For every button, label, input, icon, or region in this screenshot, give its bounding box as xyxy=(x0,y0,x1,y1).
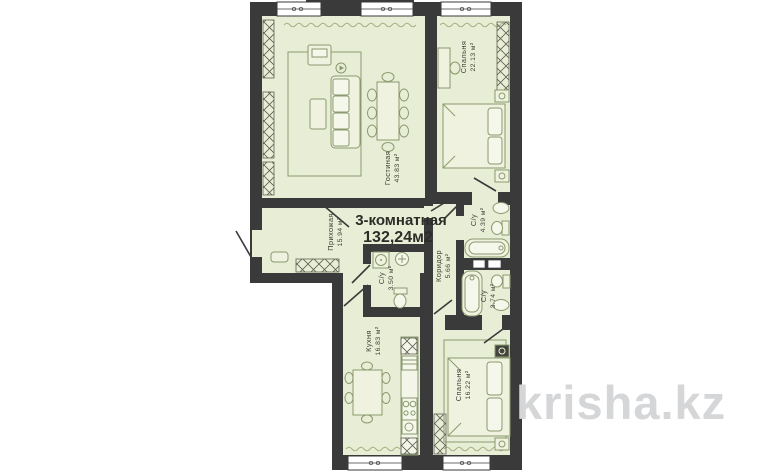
svg-text:5.66 м²: 5.66 м² xyxy=(445,253,452,278)
window-icon xyxy=(361,2,413,16)
bed-icon xyxy=(443,104,505,168)
window-icon xyxy=(348,456,402,470)
pilaster-icon xyxy=(263,20,274,78)
svg-text:Спальня: Спальня xyxy=(459,41,468,74)
bench-icon xyxy=(271,252,288,262)
bathtub-icon xyxy=(465,239,509,257)
opening-bathroom-top-door xyxy=(456,216,464,240)
sofa-icon xyxy=(331,76,360,148)
window-icon xyxy=(443,456,490,470)
window-icon xyxy=(277,2,321,16)
watermark: krisha.kz xyxy=(516,376,726,429)
pilaster-icon xyxy=(263,162,274,195)
nightstand-icon xyxy=(495,438,509,450)
wardrobe-icon xyxy=(296,259,339,272)
floor-plan-page: Гостиная 43.83 м² Спальня 22.13 м² Прихо… xyxy=(0,0,760,476)
sink-icon xyxy=(396,253,409,266)
svg-text:3.74 м²: 3.74 м² xyxy=(490,283,497,308)
svg-text:3.50 м²: 3.50 м² xyxy=(388,265,395,290)
svg-text:16.22 м²: 16.22 м² xyxy=(465,370,472,399)
washing-machine-icon xyxy=(373,252,389,268)
tv-icon xyxy=(430,51,435,63)
opening-corridor-bedroom xyxy=(433,315,445,330)
svg-text:43.83 м²: 43.83 м² xyxy=(394,153,401,182)
tv-stand-icon xyxy=(308,45,331,65)
nightstand-icon xyxy=(495,170,509,182)
svg-text:Коридор: Коридор xyxy=(434,250,443,282)
svg-text:4.39 м²: 4.39 м² xyxy=(480,207,487,232)
svg-text:Кухня: Кухня xyxy=(364,330,373,352)
plan-title-area: 132,24м2 xyxy=(363,229,433,246)
door-entrance xyxy=(236,231,251,257)
svg-text:16.83 м²: 16.83 м² xyxy=(375,326,382,355)
svg-text:Спальня: Спальня xyxy=(454,369,463,402)
opening-entrance-door xyxy=(252,230,262,257)
window-icon xyxy=(441,2,491,16)
kitchen-counter-icon xyxy=(401,337,418,455)
toilet-icon xyxy=(492,221,510,235)
pilaster-icon xyxy=(263,92,274,158)
wardrobe-icon xyxy=(497,22,509,95)
svg-text:22.13 м²: 22.13 м² xyxy=(470,42,477,71)
svg-text:Прихожая: Прихожая xyxy=(326,213,335,250)
svg-text:С/у: С/у xyxy=(377,272,386,284)
floor-plan: Гостиная 43.83 м² Спальня 22.13 м² Прихо… xyxy=(0,0,760,476)
svg-text:Гостиная: Гостиная xyxy=(383,151,392,185)
nightstand-icon xyxy=(495,345,509,357)
plan-title-type: 3-комнатная xyxy=(355,212,447,229)
opening-bedroom-top-door xyxy=(472,192,498,205)
svg-text:С/у: С/у xyxy=(479,290,488,302)
coffee-table-icon xyxy=(310,99,326,129)
opening-bath-bedroom xyxy=(482,315,502,330)
toilet-icon xyxy=(394,288,407,308)
sink-icon xyxy=(493,203,509,214)
svg-text:С/у: С/у xyxy=(469,214,478,226)
nightstand-icon xyxy=(495,90,509,102)
svg-text:15.94 м²: 15.94 м² xyxy=(337,217,344,246)
